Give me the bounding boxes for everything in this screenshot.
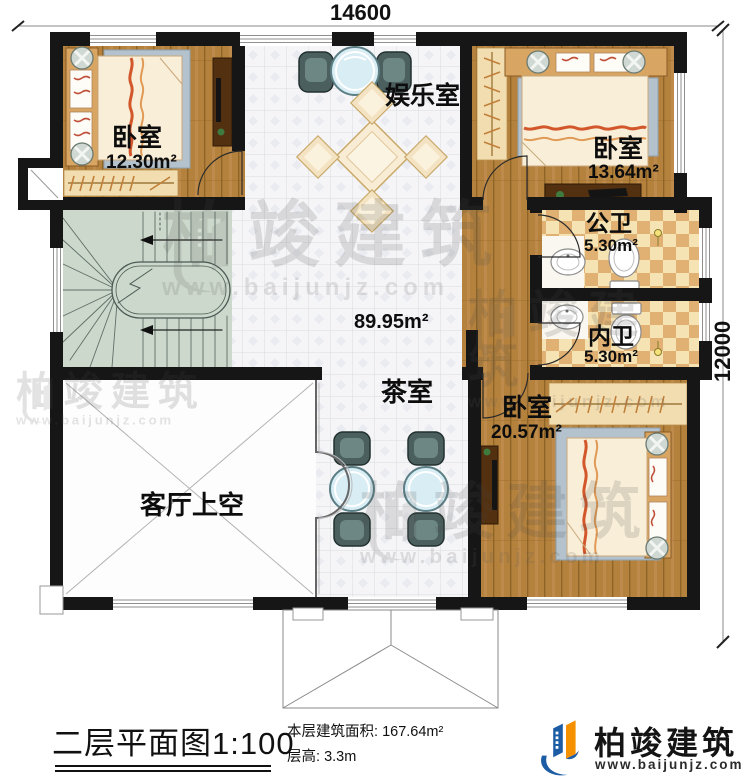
room-label-bedroom-tl: 卧室 [112, 126, 162, 151]
door-gap [530, 213, 542, 255]
floor-area-line: 本层建筑面积: 167.64m² [287, 720, 443, 741]
door-gap [530, 323, 542, 365]
room-label-entertainment: 娱乐室 [385, 84, 460, 109]
left-wall-bay [18, 158, 63, 210]
title-underline [55, 765, 271, 767]
nightstand-flower [623, 51, 645, 73]
window [374, 32, 416, 46]
room-area-bedroom-br: 20.57m² [491, 423, 562, 442]
floor-height-label: 层高: [287, 749, 320, 765]
window [674, 73, 687, 173]
window [113, 597, 253, 610]
window [699, 228, 712, 278]
room-label-public-bath: 公卫 [586, 212, 632, 235]
room-area-hall: 89.95m² [354, 312, 429, 332]
nightstand-flower [646, 433, 668, 455]
nightstand-flower [527, 51, 549, 73]
dimension-right: 12000 [712, 321, 734, 382]
brand-logo-icon [531, 714, 593, 778]
brand-url: www.baijunjz.com [595, 757, 744, 772]
room-label-tea-room: 茶室 [381, 379, 433, 405]
window [50, 248, 63, 332]
floor-height-value: 3.3m [324, 749, 356, 765]
floor-area-label: 本层建筑面积: [287, 724, 378, 740]
nightstand-flower [71, 47, 93, 69]
bed-br [556, 428, 671, 560]
closet-rod-tl [64, 170, 178, 196]
floor-area-value: 167.64m² [382, 724, 443, 740]
room-area-bedroom-tl: 12.30m² [106, 153, 177, 172]
floorplan-page: 14600 12000 卧室 12.30m² 娱乐室 卧室 13.64m² 公卫… [0, 0, 750, 783]
spiral-staircase [63, 210, 232, 367]
nightstand-flower [646, 537, 668, 559]
room-label-bedroom-br: 卧室 [502, 396, 552, 421]
floor-height-line: 层高: 3.3m [287, 745, 356, 766]
porch-roof-outline [283, 610, 498, 708]
window [527, 597, 627, 610]
door-gap [483, 197, 527, 210]
window [240, 32, 332, 46]
window [348, 597, 436, 610]
nightstand-flower [71, 143, 93, 165]
wardrobe-br [549, 383, 687, 425]
floorplan-drawing [0, 0, 750, 783]
plan-title: 二层平面图1:100 [52, 718, 295, 763]
room-label-living-void: 客厅上空 [140, 492, 244, 518]
title-underline [55, 770, 271, 772]
room-area-bedroom-tr: 13.64m² [588, 163, 659, 182]
room-area-inner-bath: 5.30m² [584, 348, 638, 365]
tea-table-set-2 [404, 432, 448, 546]
tv-cabinet-br [481, 446, 498, 524]
dimension-top: 14600 [330, 2, 391, 24]
room-area-public-bath: 5.30m² [584, 237, 638, 254]
room-label-bedroom-tr: 卧室 [593, 137, 643, 162]
room-label-inner-bath: 内卫 [588, 325, 634, 348]
closet-tr [477, 48, 507, 160]
desk-tl [213, 58, 232, 146]
door-gap [232, 151, 245, 197]
window [90, 32, 156, 46]
